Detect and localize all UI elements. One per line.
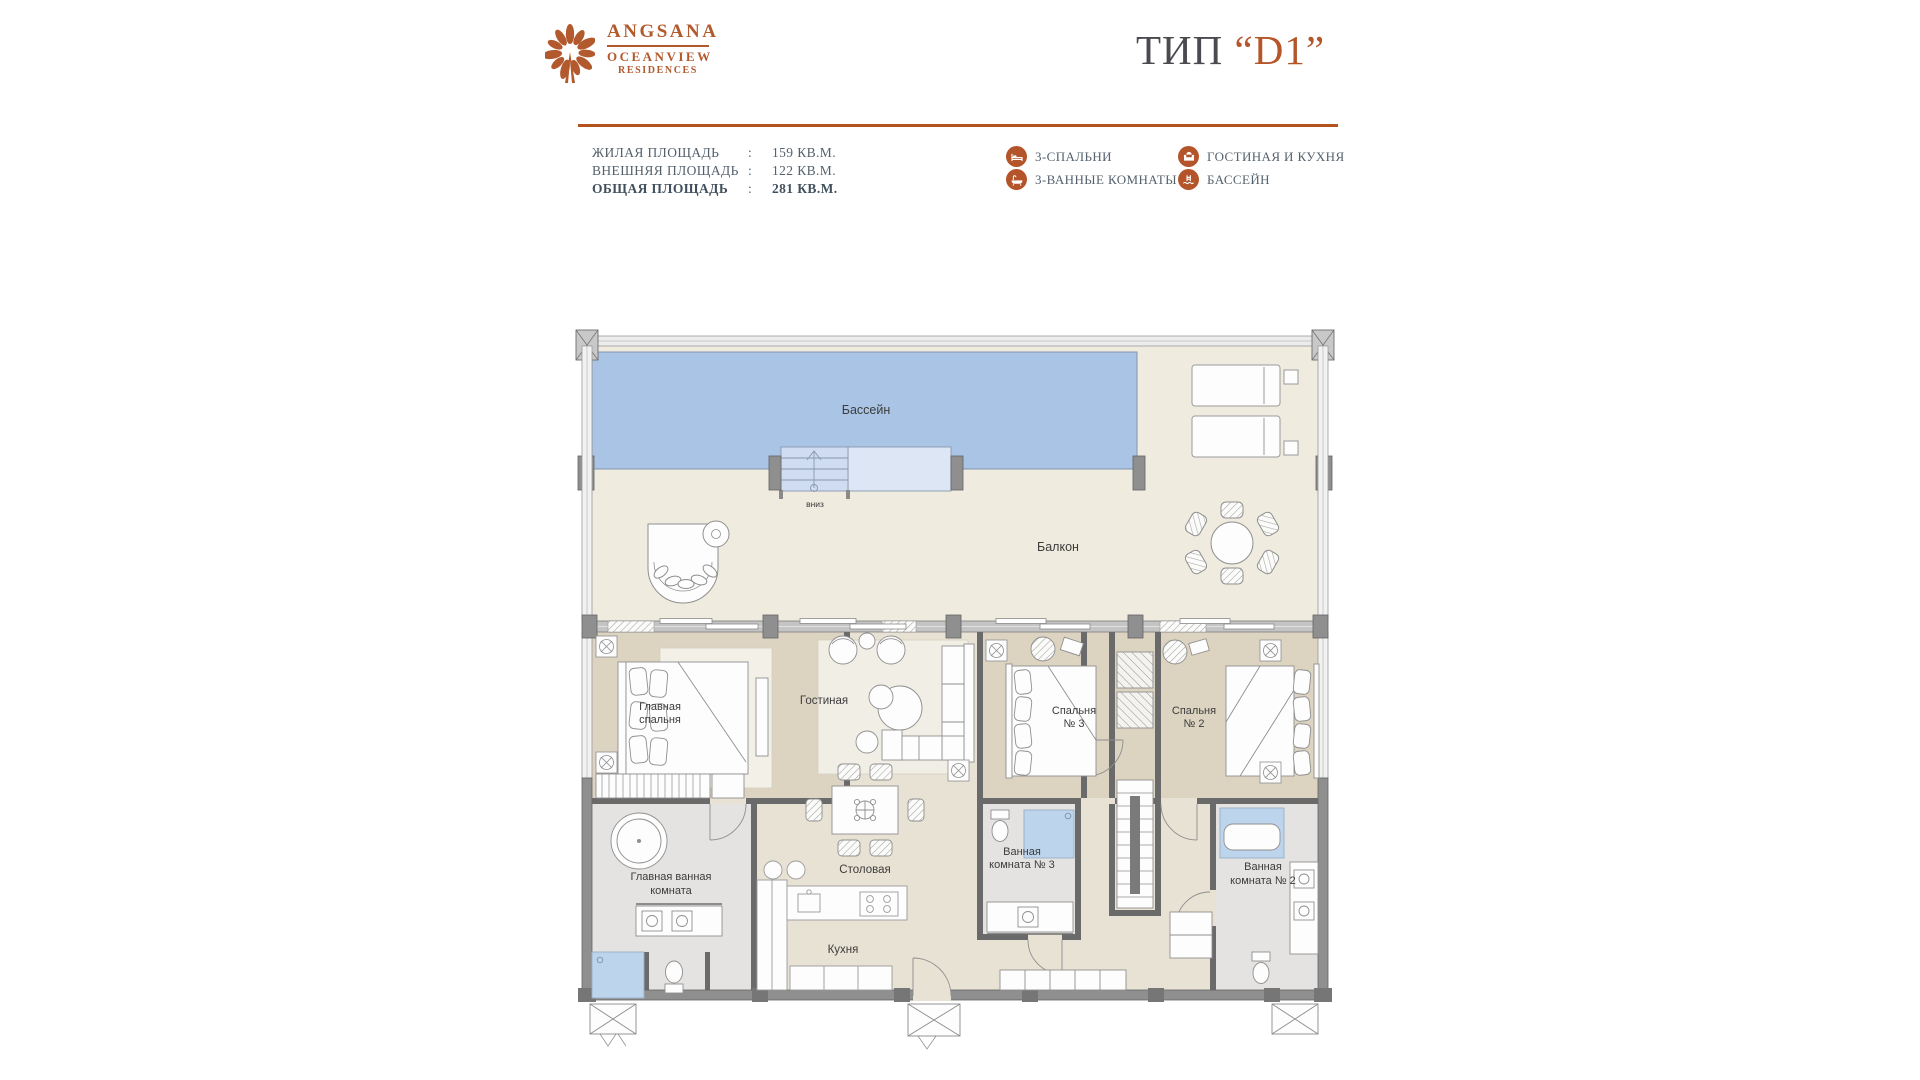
kitchen-island [790,966,892,990]
toilet-tank [991,810,1009,819]
shower [592,952,644,998]
legend-label: 3-ВАННЫЕ КОМНАТЫ [1035,172,1177,188]
brand-rule [607,45,709,47]
bed-headboard [618,662,626,774]
kitchen-sink [798,894,820,912]
area-label: ЖИЛАЯ ПЛОЩАДЬ [592,144,748,162]
area-label: ОБЩАЯ ПЛОЩАДЬ [592,180,748,198]
legend-pool: БАССЕЙН [1178,169,1270,190]
armchair [1163,640,1187,664]
bathtub-icon [1006,169,1027,190]
brand-line2: OCEANVIEW [607,50,709,64]
area-separator: : [748,180,772,198]
label-bath2-1: Ванная [1244,861,1282,873]
utility-pads [590,1004,1318,1049]
area-table: ЖИЛАЯ ПЛОЩАДЬ : 159 КВ.М. ВНЕШНЯЯ ПЛОЩАД… [592,144,882,198]
area-row-external: ВНЕШНЯЯ ПЛОЩАДЬ : 122 КВ.М. [592,162,882,180]
sofa-back [964,644,974,762]
label-master-bed-1: Главная [639,701,681,713]
area-row-living: ЖИЛАЯ ПЛОЩАДЬ : 159 КВ.М. [592,144,882,162]
legend-label: БАССЕЙН [1207,172,1270,188]
label-dining: Столовая [839,864,890,876]
label-pool: Бассейн [842,403,891,417]
toilet-tank [1252,952,1270,961]
tub [1224,824,1280,850]
area-value: 122 КВ.М. [772,162,882,180]
header-divider [578,124,1338,127]
armchair [1031,637,1055,661]
sofa-icon [1178,146,1199,167]
terrace-stairs [779,447,951,499]
legend-living-kitchen: ГОСТИНАЯ И КУХНЯ [1178,146,1345,167]
page-title: ТИП “D1” [1136,26,1325,74]
label-bath3-1: Ванная [1003,846,1041,858]
brand-logo: ANGSANA OCEANVIEW RESIDENCES [545,21,709,85]
brand-line3: RESIDENCES [607,64,709,77]
brand-name: ANGSANA [607,21,709,43]
wardrobe [1117,692,1153,728]
area-row-total: ОБЩАЯ ПЛОЩАДЬ : 281 КВ.М. [592,180,882,198]
area-value: 281 КВ.М. [772,180,882,198]
label-living: Гостиная [800,695,848,707]
bench [756,678,768,756]
label-balcony: Балкон [1037,540,1079,554]
title-code: “D1” [1235,27,1326,73]
label-stairs-down: вниз [806,499,824,509]
armchair [877,636,905,664]
legend-bathrooms: 3-ВАННЫЕ КОМНАТЫ [1006,169,1177,190]
bed [1226,666,1294,776]
title-prefix: ТИП [1136,27,1223,73]
label-kitchen: Кухня [828,944,859,956]
armchair [829,636,857,664]
entry-closet [1000,970,1126,990]
brochure-page: ANGSANA OCEANVIEW RESIDENCES ТИП “D1” ЖИ… [0,0,1920,1080]
bed-icon [1006,146,1027,167]
label-bed3-2: № 3 [1064,718,1085,730]
brand-text: ANGSANA OCEANVIEW RESIDENCES [607,21,709,77]
toilet [992,821,1008,842]
legend-label: ГОСТИНАЯ И КУХНЯ [1207,149,1345,165]
pouf [856,731,878,753]
floor-plan: Бассейн вниз Балкон Главная спальня Гост… [560,310,1350,1050]
label-bed3-1: Спальня [1052,705,1096,717]
area-label: ВНЕШНЯЯ ПЛОЩАДЬ [592,162,748,180]
area-separator: : [748,144,772,162]
area-value: 159 КВ.М. [772,144,882,162]
stool [764,861,782,879]
label-bed2-1: Спальня [1172,705,1216,717]
label-master-bath-2: комната [650,885,692,897]
legend-label: 3-СПАЛЬНИ [1035,149,1112,165]
label-master-bed-2: спальня [639,714,681,726]
flower-icon [545,21,595,85]
pool-icon [1178,169,1199,190]
wall-bottom [578,988,1332,1002]
label-bath2-2: комната № 2 [1230,875,1296,887]
legend-bedrooms: 3-СПАЛЬНИ [1006,146,1112,167]
wardrobe [1117,652,1153,688]
area-separator: : [748,162,772,180]
stool [787,861,805,879]
toilet-tank [665,984,683,993]
bed-headboard [1314,664,1319,778]
label-bed2-2: № 2 [1184,718,1205,730]
bed-headboard [1006,664,1012,778]
toilet [1253,963,1269,984]
toilet [666,961,683,983]
label-bath3-2: комната № 3 [989,859,1055,871]
stove [860,892,898,916]
label-master-bath-1: Главная ванная [631,871,712,883]
